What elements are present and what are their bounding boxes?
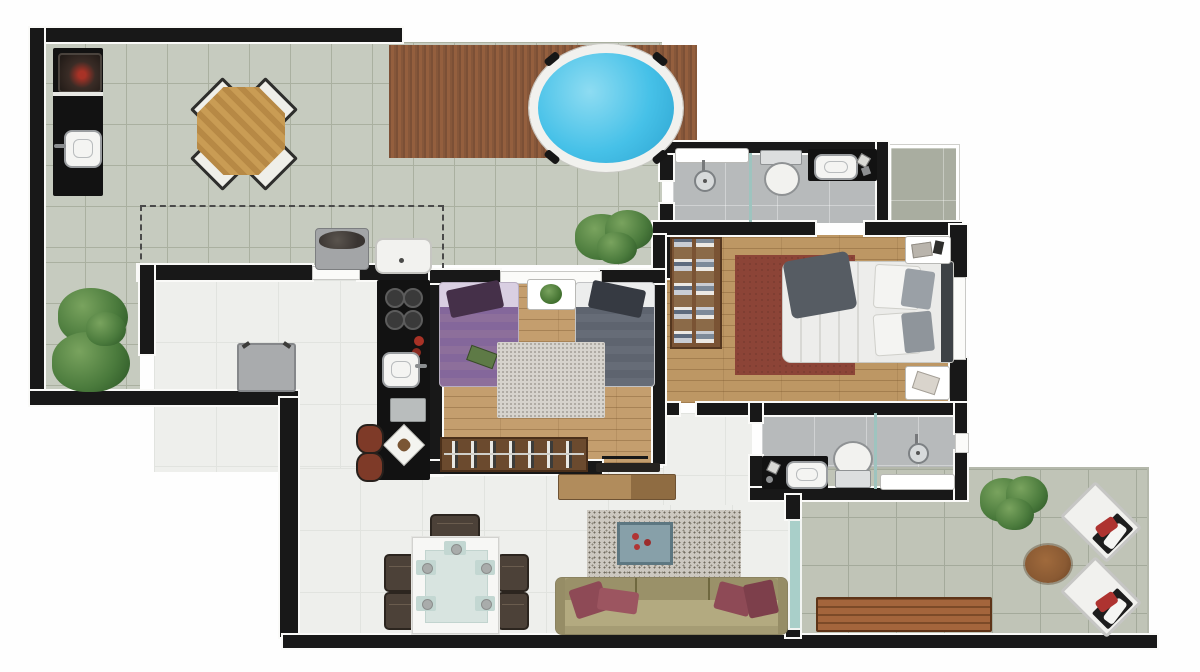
laundry-tub-drain: [399, 258, 404, 263]
dining-chair: [497, 592, 529, 630]
planter: [575, 210, 653, 266]
vanity2-accessory: [766, 476, 773, 483]
wall-bench: [675, 148, 749, 163]
wall-terrace-inner: [140, 265, 154, 354]
master-bed: [783, 262, 953, 362]
coffee-table: [617, 522, 673, 565]
kitchen-faucet: [415, 364, 427, 368]
pillow: [901, 311, 935, 354]
wardrobe: [670, 237, 722, 349]
wall-bedroom-top-b: [600, 270, 665, 283]
planter: [52, 288, 136, 392]
refrigerator: [237, 343, 296, 392]
nightstand-books: [911, 242, 933, 259]
shower-partition: [749, 153, 752, 222]
wall-bath2-right-b: [955, 451, 967, 500]
laundry-tub: [375, 238, 432, 274]
floor-plan: [0, 0, 1200, 672]
vanity1-sink: [814, 154, 858, 180]
service-area-floor: [888, 145, 959, 226]
twin-rug: [497, 342, 605, 418]
plant-mat: [527, 279, 576, 310]
wall-master-top-a: [653, 222, 815, 235]
pillow: [901, 268, 936, 310]
wardrobe-shelf-items: [696, 239, 714, 343]
door-leaf: [602, 456, 648, 459]
wall-bath2-left-a: [750, 403, 762, 422]
bar-stool: [356, 452, 384, 482]
nightstand: [905, 366, 950, 400]
sofa-arm: [556, 578, 565, 634]
window-bath2: [955, 433, 969, 453]
shoe-rack: [440, 437, 588, 472]
outdoor-sink: [64, 130, 102, 168]
planter: [540, 284, 562, 304]
vanity2-sink: [786, 461, 828, 489]
toilet-tank: [835, 470, 871, 488]
kitchen-sink: [382, 352, 420, 388]
headboard: [941, 262, 953, 362]
nightstand-tablet: [912, 371, 940, 396]
shoe-rack-rail: [444, 453, 584, 455]
wall-top: [30, 28, 402, 42]
bed-throw: [782, 251, 857, 320]
glass-door-living: [788, 519, 802, 630]
sofa-arm: [778, 578, 787, 634]
nightstand: [905, 236, 951, 264]
washing-machine: [315, 228, 369, 270]
tv-sideboard: [558, 474, 676, 500]
shower-bench: [880, 474, 955, 490]
wall-living-right-a: [786, 495, 800, 519]
dining-chair: [497, 554, 529, 592]
window-master: [952, 277, 966, 360]
shower-head: [908, 443, 929, 464]
hot-tub: [529, 44, 683, 172]
hallway-floor: [663, 413, 752, 505]
shower-partition: [874, 413, 877, 489]
cooktop: [383, 286, 425, 332]
wall-north-a: [138, 265, 312, 280]
counter-divider: [53, 92, 103, 96]
dining-table: [412, 537, 499, 634]
wardrobe-shelf-items: [674, 239, 692, 343]
side-table: [1025, 545, 1071, 583]
wall-master-top-b: [865, 222, 962, 235]
washing-machine-top: [319, 231, 365, 249]
wall-master-bottom-b: [697, 403, 967, 415]
wall-bottom: [283, 635, 1157, 648]
bar-stool: [356, 424, 384, 454]
sofa: [556, 578, 787, 634]
kitchen-tray: [390, 398, 426, 422]
planter: [980, 476, 1048, 532]
toilet: [764, 162, 800, 196]
wall-left: [30, 28, 44, 405]
nightstand-phone: [933, 240, 945, 255]
garden-bench: [816, 597, 992, 632]
shower-head: [694, 170, 716, 192]
tv: [596, 463, 660, 472]
wall-living-left: [280, 398, 298, 637]
kitchen-item-red: [414, 336, 424, 346]
wall-terrace-bottom: [30, 391, 298, 405]
barbecue-grill: [58, 53, 102, 93]
wall-bath1-right: [877, 142, 888, 233]
wall-bath2-right-a: [955, 403, 967, 433]
outdoor-sink-faucet: [54, 144, 66, 148]
